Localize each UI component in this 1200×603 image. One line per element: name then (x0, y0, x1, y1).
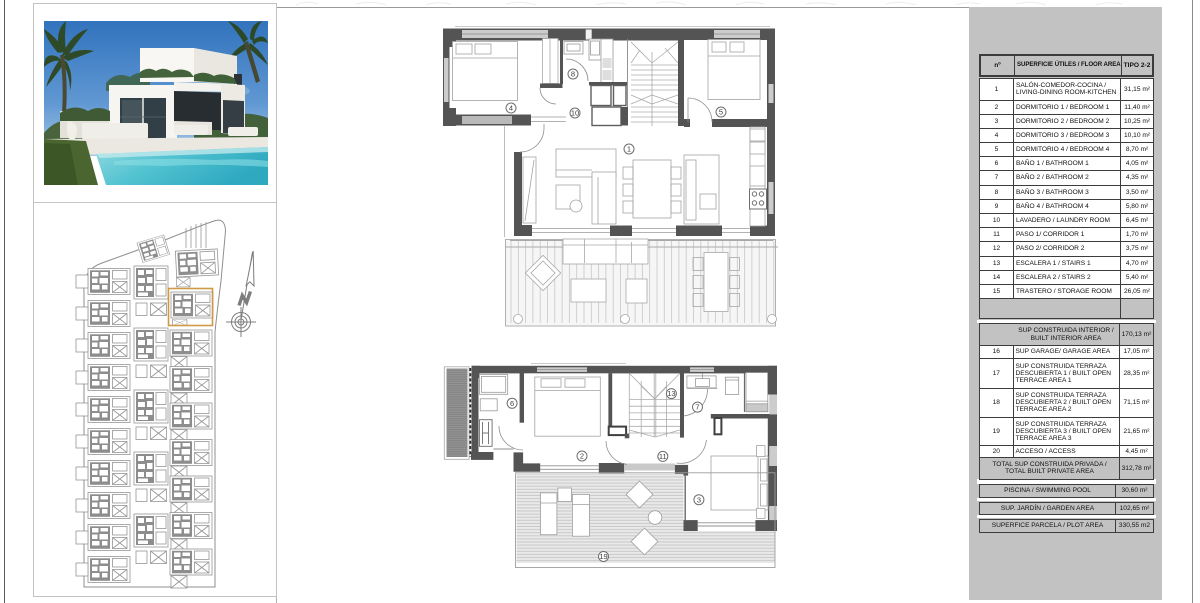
svg-text:19: 19 (599, 552, 607, 561)
svg-text:4: 4 (509, 104, 513, 113)
svg-text:6: 6 (510, 399, 514, 408)
svg-text:13: 13 (667, 389, 675, 398)
svg-text:8: 8 (571, 70, 575, 79)
svg-text:1: 1 (627, 145, 631, 154)
svg-text:3: 3 (697, 495, 701, 504)
svg-text:10: 10 (571, 109, 579, 118)
svg-text:11: 11 (659, 452, 667, 461)
svg-text:7: 7 (695, 403, 699, 412)
svg-text:5: 5 (719, 108, 723, 117)
svg-text:2: 2 (580, 452, 584, 461)
